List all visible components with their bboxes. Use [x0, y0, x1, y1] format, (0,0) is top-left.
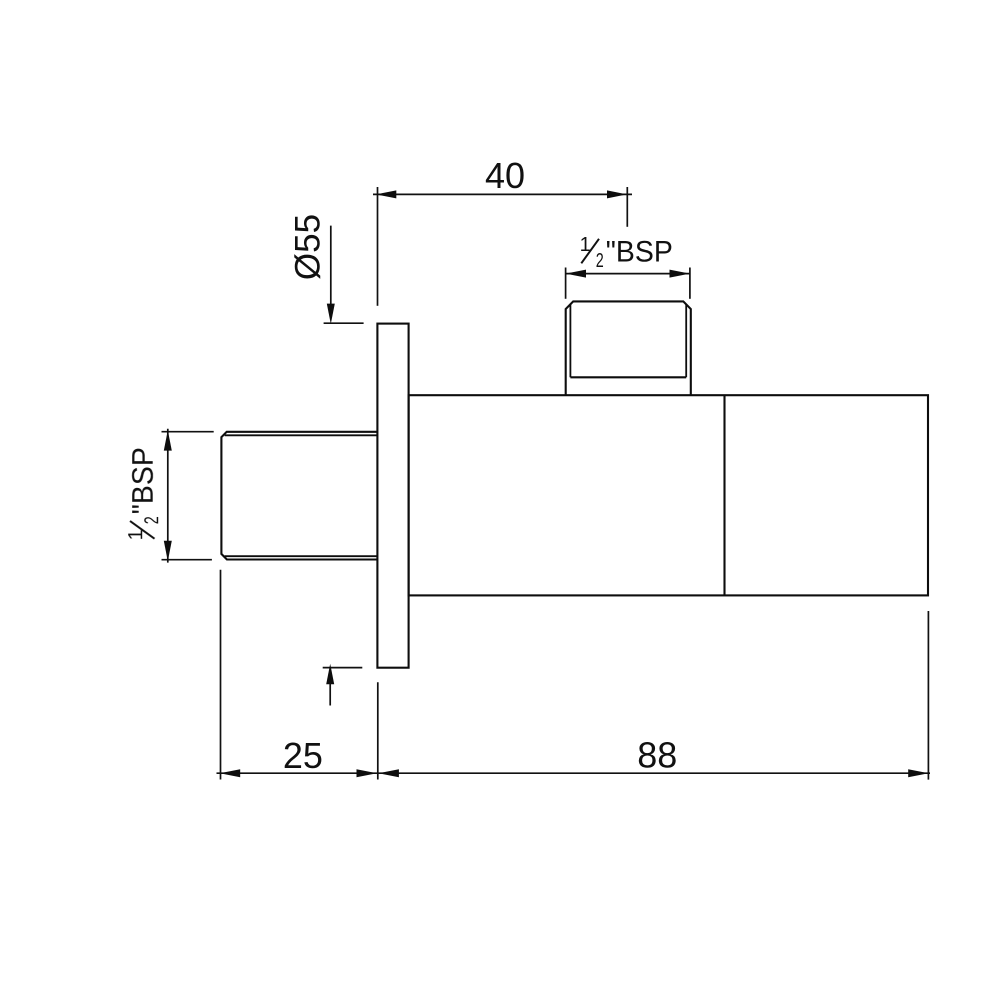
- svg-text:"BSP: "BSP: [126, 447, 159, 514]
- svg-text:2: 2: [596, 250, 604, 272]
- svg-text:88: 88: [637, 734, 677, 775]
- svg-text:Ø55: Ø55: [289, 214, 328, 280]
- svg-text:2: 2: [141, 516, 163, 524]
- svg-text:40: 40: [485, 155, 525, 196]
- svg-text:"BSP: "BSP: [606, 235, 673, 268]
- svg-text:25: 25: [283, 735, 323, 776]
